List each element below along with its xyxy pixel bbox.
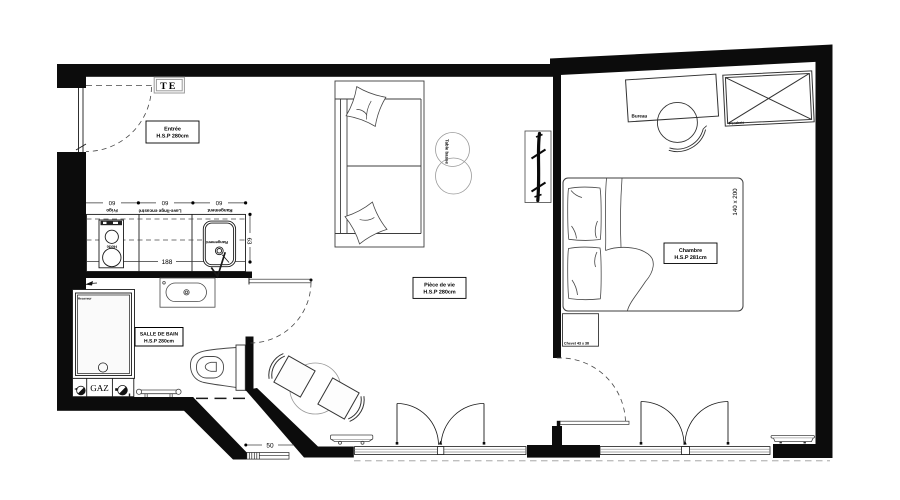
svg-text:Lave-linge encastré: Lave-linge encastré — [138, 209, 181, 214]
svg-text:Receveur: Receveur — [78, 297, 92, 301]
svg-text:Table basse: Table basse — [445, 139, 450, 164]
svg-text:60: 60 — [161, 199, 168, 206]
svg-text:60: 60 — [215, 199, 222, 206]
svg-text:188: 188 — [162, 259, 173, 266]
svg-text:H.S.P 281cm: H.S.P 281cm — [674, 255, 706, 261]
svg-text:H.S.P 280cm: H.S.P 280cm — [423, 290, 455, 296]
svg-text:Frigo: Frigo — [106, 208, 118, 213]
svg-text:H.S.P 280cm: H.S.P 280cm — [144, 338, 174, 344]
svg-text:Rangement: Rangement — [205, 240, 227, 245]
svg-text:Chambre: Chambre — [679, 248, 702, 254]
svg-text:60: 60 — [108, 199, 115, 206]
svg-text:TE: TE — [160, 81, 177, 92]
svg-text:Penderie: Penderie — [729, 121, 744, 126]
svg-text:Rangement: Rangement — [207, 208, 232, 213]
svg-text:Hotte: Hotte — [106, 245, 117, 250]
svg-text:50: 50 — [266, 442, 274, 449]
svg-text:Pièce de vie: Pièce de vie — [424, 283, 455, 289]
svg-text:63: 63 — [246, 238, 253, 245]
svg-text:Entrée: Entrée — [164, 127, 181, 133]
svg-text:140 x 200: 140 x 200 — [732, 188, 739, 216]
svg-text:Chevet 43 x 38: Chevet 43 x 38 — [564, 342, 589, 346]
svg-text:Bureau: Bureau — [632, 114, 648, 119]
svg-text:H.S.P 280cm: H.S.P 280cm — [156, 134, 188, 140]
svg-text:GAZ: GAZ — [90, 383, 109, 393]
svg-text:SALLE DE BAIN: SALLE DE BAIN — [140, 332, 179, 338]
